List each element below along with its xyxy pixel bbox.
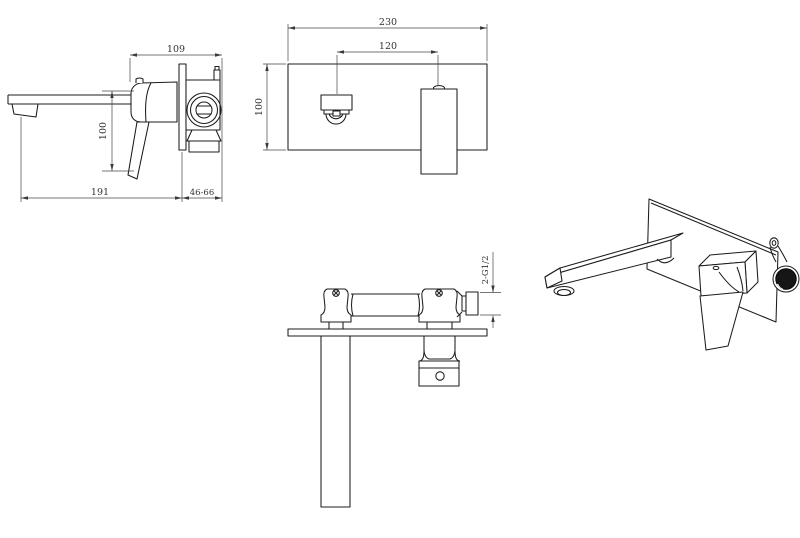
dim-191-label: 191 — [91, 187, 109, 198]
dim-46-66-label: 46-66 — [190, 188, 215, 198]
technical-drawing-canvas: 109 100 191 46-66 — [0, 0, 800, 538]
dim-230-label: 230 — [379, 17, 397, 28]
plan-tube — [351, 294, 420, 316]
faucet-technical-drawing: 109 100 191 46-66 — [0, 0, 800, 538]
plan-right-stub — [427, 322, 452, 329]
body-screw — [136, 78, 143, 83]
handle-front — [421, 89, 457, 174]
handle-lever — [128, 122, 149, 179]
dim-109-label: 109 — [167, 44, 185, 55]
handle-stub-plan — [424, 336, 455, 359]
spout-slot — [333, 111, 340, 116]
aerator — [12, 104, 38, 117]
dim-thread-label: 2-G1/2 — [481, 256, 491, 285]
spout-front — [321, 95, 352, 110]
iso-handle-front — [699, 262, 747, 296]
spout-plan — [321, 336, 350, 507]
wall-plate-side — [179, 64, 186, 150]
wall-plate-plan — [288, 329, 487, 336]
inlet-neck — [462, 296, 466, 311]
dim-100-label: 100 — [98, 122, 109, 140]
top-stem-cap — [215, 67, 219, 71]
dim-120-label: 120 — [379, 41, 397, 52]
iso-lever — [700, 292, 743, 350]
mixer-body — [131, 82, 177, 122]
top-view: 2-G1/2 — [288, 252, 501, 507]
inlet-thread-body — [466, 292, 478, 315]
handle-grip-plan — [419, 361, 459, 386]
spout-outline — [8, 95, 133, 104]
top-stem — [214, 70, 220, 80]
side-view: 109 100 191 46-66 — [8, 44, 222, 202]
valve-base — [189, 141, 219, 152]
dim-100f-label: 100 — [254, 98, 265, 116]
hex-nut — [187, 130, 221, 141]
perspective-view — [545, 199, 799, 350]
iso-ring — [770, 238, 778, 248]
front-view: 230 120 100 — [254, 17, 487, 174]
plan-left-stub — [329, 322, 343, 329]
